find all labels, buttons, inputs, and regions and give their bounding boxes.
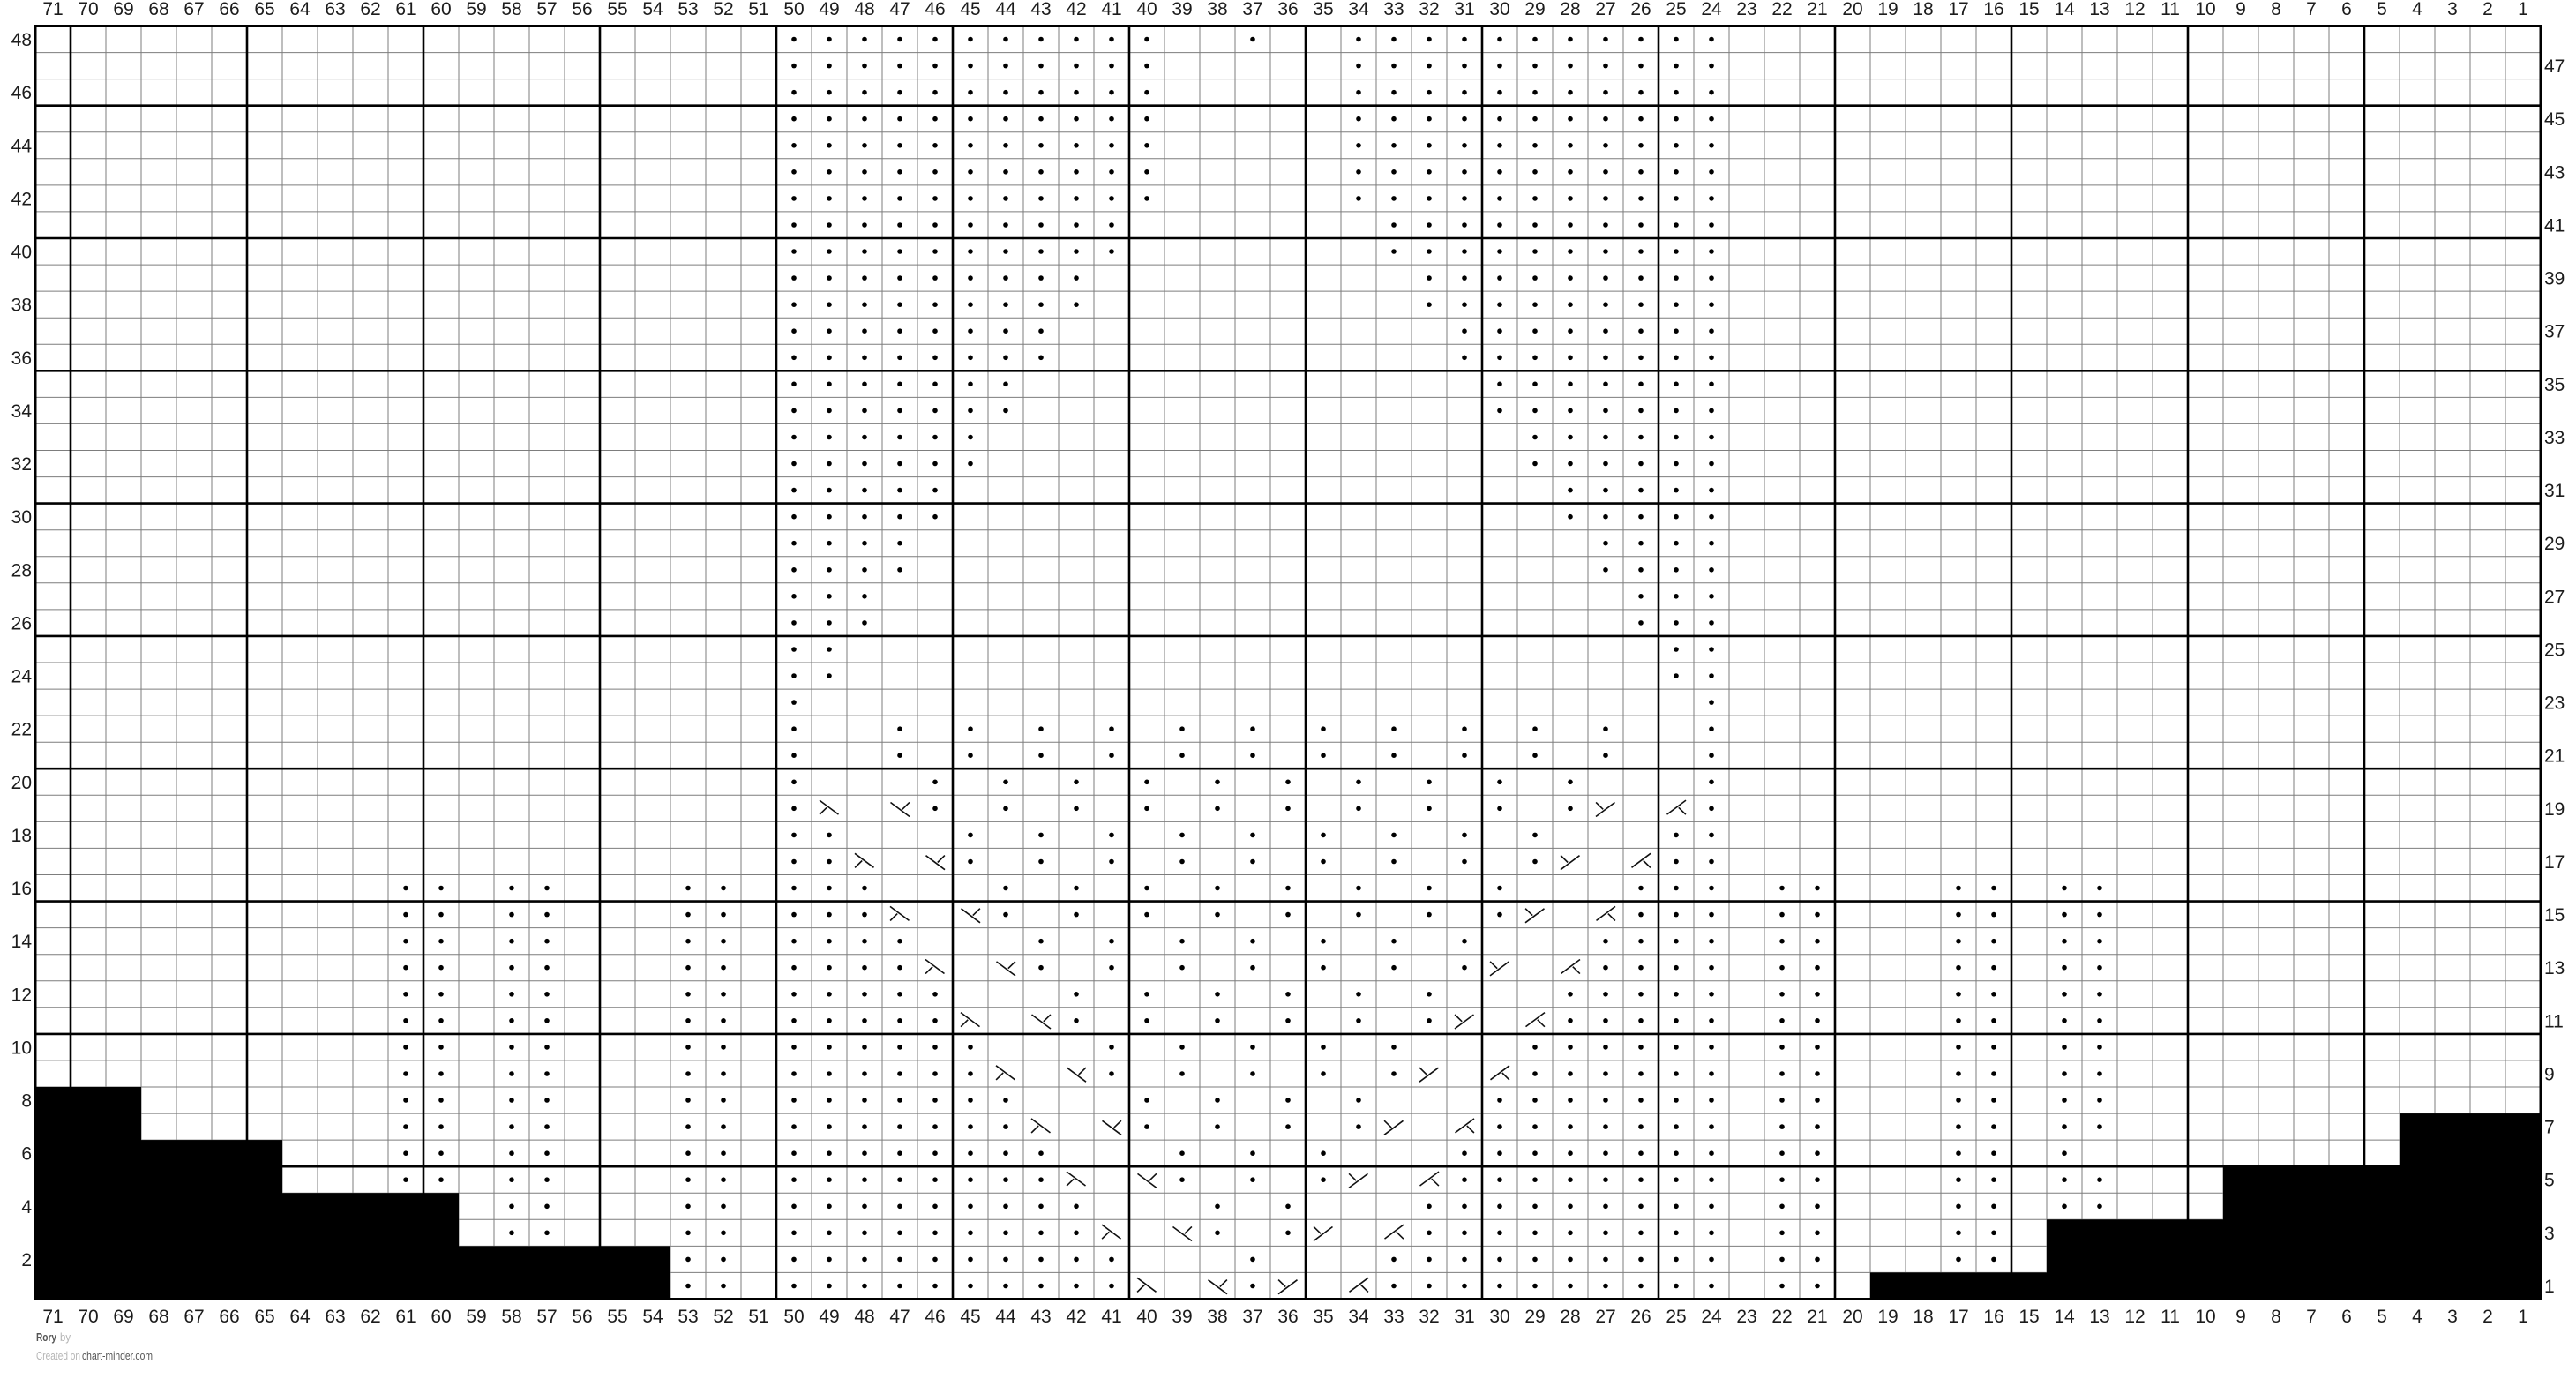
svg-text:12: 12 xyxy=(11,985,32,1005)
svg-text:8: 8 xyxy=(21,1091,32,1112)
svg-text:1: 1 xyxy=(2518,0,2528,19)
svg-text:49: 49 xyxy=(819,1307,839,1327)
svg-text:18: 18 xyxy=(1913,0,1933,19)
svg-text:12: 12 xyxy=(2124,1307,2145,1327)
svg-text:22: 22 xyxy=(1771,0,1792,19)
svg-text:52: 52 xyxy=(713,1307,733,1327)
svg-text:9: 9 xyxy=(2544,1065,2555,1085)
svg-text:10: 10 xyxy=(2195,1307,2215,1327)
svg-text:10: 10 xyxy=(2195,0,2215,19)
svg-text:43: 43 xyxy=(1030,0,1051,19)
svg-text:chart-minder.com: chart-minder.com xyxy=(82,1350,153,1362)
svg-text:6: 6 xyxy=(2341,0,2352,19)
svg-text:44: 44 xyxy=(995,0,1016,19)
svg-text:45: 45 xyxy=(960,1307,980,1327)
svg-text:21: 21 xyxy=(2544,746,2565,767)
svg-text:59: 59 xyxy=(466,1307,486,1327)
svg-text:20: 20 xyxy=(1842,0,1862,19)
svg-text:67: 67 xyxy=(183,0,204,19)
svg-text:31: 31 xyxy=(2544,481,2565,501)
svg-text:5: 5 xyxy=(2377,1307,2387,1327)
svg-text:19: 19 xyxy=(2544,799,2565,820)
svg-text:70: 70 xyxy=(78,1307,98,1327)
svg-text:47: 47 xyxy=(2544,56,2565,77)
svg-text:43: 43 xyxy=(1030,1307,1051,1327)
svg-text:7: 7 xyxy=(2544,1118,2555,1138)
svg-text:6: 6 xyxy=(21,1144,32,1165)
svg-text:45: 45 xyxy=(960,0,980,19)
svg-text:23: 23 xyxy=(1736,1307,1756,1327)
svg-text:66: 66 xyxy=(219,1307,239,1327)
svg-text:49: 49 xyxy=(819,0,839,19)
svg-text:40: 40 xyxy=(1136,1307,1157,1327)
svg-text:2: 2 xyxy=(2482,0,2493,19)
svg-text:4: 4 xyxy=(21,1197,32,1218)
svg-text:13: 13 xyxy=(2089,0,2109,19)
svg-text:4: 4 xyxy=(2412,1307,2422,1327)
svg-text:19: 19 xyxy=(1877,1307,1898,1327)
svg-text:19: 19 xyxy=(1877,0,1898,19)
svg-text:28: 28 xyxy=(1560,0,1580,19)
svg-text:68: 68 xyxy=(148,1307,168,1327)
svg-text:40: 40 xyxy=(1136,0,1157,19)
svg-text:32: 32 xyxy=(1419,0,1439,19)
svg-text:20: 20 xyxy=(1842,1307,1862,1327)
svg-text:53: 53 xyxy=(678,1307,698,1327)
svg-text:16: 16 xyxy=(1983,1307,2003,1327)
svg-text:67: 67 xyxy=(183,1307,204,1327)
svg-text:15: 15 xyxy=(2018,1307,2039,1327)
svg-text:59: 59 xyxy=(466,0,486,19)
svg-text:by: by xyxy=(60,1331,71,1344)
svg-text:64: 64 xyxy=(289,1307,311,1327)
svg-text:24: 24 xyxy=(1701,0,1722,19)
svg-text:3: 3 xyxy=(2544,1224,2555,1244)
svg-text:33: 33 xyxy=(2544,428,2565,448)
svg-text:58: 58 xyxy=(501,1307,521,1327)
svg-text:36: 36 xyxy=(1277,1307,1298,1327)
svg-text:36: 36 xyxy=(1277,0,1298,19)
svg-text:30: 30 xyxy=(1489,0,1509,19)
svg-text:3: 3 xyxy=(2447,1307,2458,1327)
svg-text:17: 17 xyxy=(1948,1307,1968,1327)
svg-text:60: 60 xyxy=(431,0,451,19)
svg-text:43: 43 xyxy=(2544,162,2565,183)
svg-text:32: 32 xyxy=(11,454,32,475)
svg-text:8: 8 xyxy=(2271,0,2281,19)
svg-text:38: 38 xyxy=(1207,1307,1227,1327)
svg-text:37: 37 xyxy=(1242,0,1262,19)
svg-text:15: 15 xyxy=(2544,905,2565,926)
svg-text:42: 42 xyxy=(1066,0,1086,19)
svg-text:16: 16 xyxy=(1983,0,2003,19)
svg-text:25: 25 xyxy=(1666,0,1686,19)
svg-text:10: 10 xyxy=(11,1038,32,1058)
svg-text:57: 57 xyxy=(536,0,557,19)
svg-text:11: 11 xyxy=(2160,0,2180,19)
svg-text:12: 12 xyxy=(2124,0,2145,19)
svg-text:32: 32 xyxy=(1419,1307,1439,1327)
svg-text:50: 50 xyxy=(783,1307,804,1327)
svg-text:20: 20 xyxy=(11,773,32,793)
svg-text:65: 65 xyxy=(254,1307,274,1327)
svg-text:5: 5 xyxy=(2544,1171,2555,1191)
svg-text:29: 29 xyxy=(1524,1307,1545,1327)
svg-text:18: 18 xyxy=(1913,1307,1933,1327)
svg-text:35: 35 xyxy=(1313,0,1333,19)
svg-text:55: 55 xyxy=(607,0,627,19)
svg-text:30: 30 xyxy=(11,507,32,528)
svg-text:24: 24 xyxy=(1701,1307,1722,1327)
svg-text:64: 64 xyxy=(289,0,311,19)
svg-text:1: 1 xyxy=(2518,1307,2528,1327)
svg-text:39: 39 xyxy=(2544,269,2565,289)
svg-text:9: 9 xyxy=(2235,0,2246,19)
svg-text:26: 26 xyxy=(1630,0,1651,19)
svg-text:41: 41 xyxy=(2544,216,2565,236)
svg-text:27: 27 xyxy=(1595,1307,1615,1327)
svg-text:6: 6 xyxy=(2341,1307,2352,1327)
svg-text:56: 56 xyxy=(572,0,592,19)
svg-text:48: 48 xyxy=(11,30,32,50)
svg-text:70: 70 xyxy=(78,0,98,19)
svg-text:7: 7 xyxy=(2306,0,2317,19)
svg-text:26: 26 xyxy=(11,613,32,633)
svg-text:28: 28 xyxy=(11,560,32,581)
svg-text:56: 56 xyxy=(572,1307,592,1327)
svg-text:46: 46 xyxy=(925,1307,945,1327)
svg-text:69: 69 xyxy=(113,1307,133,1327)
svg-text:48: 48 xyxy=(854,1307,874,1327)
svg-text:61: 61 xyxy=(395,1307,416,1327)
svg-text:33: 33 xyxy=(1383,0,1404,19)
svg-text:28: 28 xyxy=(1560,1307,1580,1327)
svg-text:34: 34 xyxy=(1348,1307,1369,1327)
svg-text:62: 62 xyxy=(360,1307,380,1327)
svg-text:71: 71 xyxy=(42,0,63,19)
svg-text:15: 15 xyxy=(2018,0,2039,19)
svg-text:11: 11 xyxy=(2160,1307,2180,1327)
svg-text:29: 29 xyxy=(2544,534,2565,554)
svg-text:51: 51 xyxy=(748,0,768,19)
svg-text:31: 31 xyxy=(1454,0,1474,19)
svg-text:4: 4 xyxy=(2412,0,2422,19)
svg-text:69: 69 xyxy=(113,0,133,19)
svg-text:47: 47 xyxy=(889,1307,910,1327)
svg-text:37: 37 xyxy=(2544,322,2565,342)
svg-text:38: 38 xyxy=(11,296,32,316)
svg-text:27: 27 xyxy=(1595,0,1615,19)
svg-text:50: 50 xyxy=(783,0,804,19)
svg-text:34: 34 xyxy=(1348,0,1369,19)
svg-text:3: 3 xyxy=(2447,0,2458,19)
svg-text:40: 40 xyxy=(11,243,32,263)
svg-text:13: 13 xyxy=(2544,958,2565,978)
svg-text:31: 31 xyxy=(1454,1307,1474,1327)
svg-text:14: 14 xyxy=(2054,1307,2075,1327)
svg-text:54: 54 xyxy=(642,1307,663,1327)
svg-text:25: 25 xyxy=(2544,641,2565,661)
svg-text:17: 17 xyxy=(2544,852,2565,873)
svg-text:62: 62 xyxy=(360,0,380,19)
svg-text:38: 38 xyxy=(1207,0,1227,19)
svg-text:14: 14 xyxy=(2054,0,2075,19)
svg-text:2: 2 xyxy=(2482,1307,2493,1327)
svg-text:44: 44 xyxy=(11,136,33,156)
svg-text:35: 35 xyxy=(2544,375,2565,395)
svg-text:33: 33 xyxy=(1383,1307,1404,1327)
svg-text:24: 24 xyxy=(11,667,33,687)
svg-text:35: 35 xyxy=(1313,1307,1333,1327)
svg-text:54: 54 xyxy=(642,0,663,19)
svg-text:66: 66 xyxy=(219,0,239,19)
svg-text:21: 21 xyxy=(1807,0,1827,19)
svg-text:1: 1 xyxy=(2544,1277,2555,1297)
svg-text:14: 14 xyxy=(11,932,33,952)
svg-text:53: 53 xyxy=(678,0,698,19)
svg-text:44: 44 xyxy=(995,1307,1016,1327)
svg-text:34: 34 xyxy=(11,401,33,422)
svg-text:63: 63 xyxy=(325,1307,345,1327)
svg-text:71: 71 xyxy=(42,1307,63,1327)
svg-text:17: 17 xyxy=(1948,0,1968,19)
svg-text:22: 22 xyxy=(11,720,32,740)
svg-text:63: 63 xyxy=(325,0,345,19)
svg-text:18: 18 xyxy=(11,826,32,846)
svg-text:21: 21 xyxy=(1807,1307,1827,1327)
svg-text:39: 39 xyxy=(1172,0,1192,19)
svg-text:48: 48 xyxy=(854,0,874,19)
svg-text:8: 8 xyxy=(2271,1307,2281,1327)
svg-text:29: 29 xyxy=(1524,0,1545,19)
svg-text:42: 42 xyxy=(1066,1307,1086,1327)
svg-text:25: 25 xyxy=(1666,1307,1686,1327)
svg-text:9: 9 xyxy=(2235,1307,2246,1327)
svg-text:65: 65 xyxy=(254,0,274,19)
svg-text:22: 22 xyxy=(1771,1307,1792,1327)
svg-text:55: 55 xyxy=(607,1307,627,1327)
svg-text:51: 51 xyxy=(748,1307,768,1327)
svg-text:45: 45 xyxy=(2544,109,2565,130)
svg-text:2: 2 xyxy=(21,1250,32,1270)
svg-text:30: 30 xyxy=(1489,1307,1509,1327)
svg-text:57: 57 xyxy=(536,1307,557,1327)
svg-text:60: 60 xyxy=(431,1307,451,1327)
svg-text:7: 7 xyxy=(2306,1307,2317,1327)
svg-text:46: 46 xyxy=(11,83,32,103)
svg-text:16: 16 xyxy=(11,879,32,899)
svg-text:39: 39 xyxy=(1172,1307,1192,1327)
svg-text:37: 37 xyxy=(1242,1307,1262,1327)
svg-text:13: 13 xyxy=(2089,1307,2109,1327)
svg-text:61: 61 xyxy=(395,0,416,19)
svg-text:52: 52 xyxy=(713,0,733,19)
svg-text:27: 27 xyxy=(2544,587,2565,607)
svg-text:41: 41 xyxy=(1101,0,1121,19)
svg-text:26: 26 xyxy=(1630,1307,1651,1327)
svg-text:46: 46 xyxy=(925,0,945,19)
svg-text:Rory: Rory xyxy=(36,1331,56,1344)
svg-text:58: 58 xyxy=(501,0,521,19)
svg-text:68: 68 xyxy=(148,0,168,19)
svg-text:Created on: Created on xyxy=(36,1350,80,1362)
svg-text:5: 5 xyxy=(2377,0,2387,19)
svg-text:36: 36 xyxy=(11,348,32,369)
svg-text:47: 47 xyxy=(889,0,910,19)
svg-text:41: 41 xyxy=(1101,1307,1121,1327)
svg-text:42: 42 xyxy=(11,189,32,209)
svg-text:23: 23 xyxy=(1736,0,1756,19)
svg-text:11: 11 xyxy=(2544,1011,2564,1031)
svg-text:23: 23 xyxy=(2544,693,2565,714)
